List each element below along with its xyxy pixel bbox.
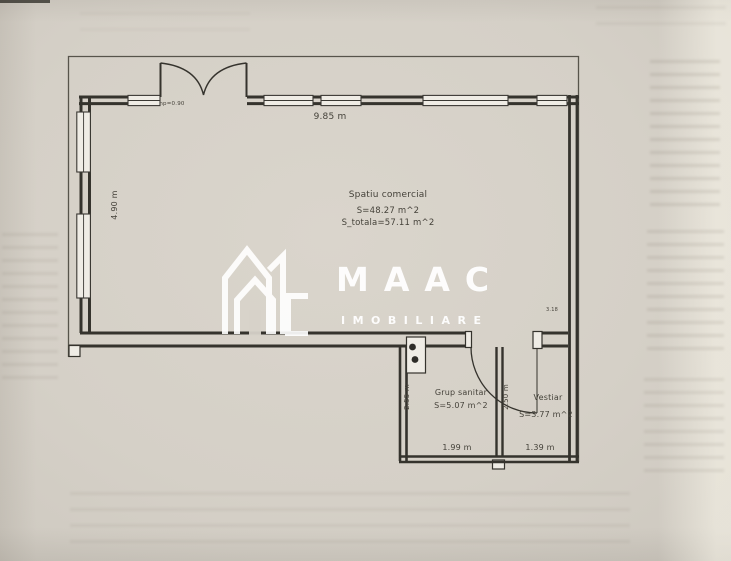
dim-left-depth: 4.90 m <box>110 175 122 235</box>
dim-top-width: 9.85 m <box>302 112 358 122</box>
scanned-floor-plan-page: 9.85 m hp=0.90 4.90 m Spatiu comercial S… <box>0 0 731 561</box>
sanitar-room-name: Grup sanitar <box>421 388 501 397</box>
watermark-subtitle: IMOBILIARE <box>341 314 488 327</box>
total-area: S_totala=57.11 m^2 <box>333 218 443 228</box>
watermark-brand: MAAC <box>336 260 504 299</box>
logo-door-gap <box>249 310 261 336</box>
dim-sanitar-depth: 2.55 m <box>403 374 413 420</box>
maac-house-logo-icon <box>220 240 312 336</box>
right-wall <box>570 95 578 462</box>
entrance-double-door <box>161 63 247 97</box>
sanitar-room-area: S=5.07 m^2 <box>421 401 501 410</box>
main-room-name: Spatiu comercial <box>333 190 443 200</box>
bottom-wall <box>69 332 568 357</box>
vestiar-room-area: S=3.77 m^2 <box>510 410 582 419</box>
main-room-area: S=48.27 m^2 <box>333 206 443 216</box>
dim-sanitar-width: 1.99 m <box>432 443 482 452</box>
window-parapet-note: hp=0.90 <box>150 101 194 107</box>
dim-vestiar-width: 1.39 m <box>510 443 570 452</box>
sanitary-fixture-icon <box>407 337 426 373</box>
vestiar-room-name: Vestiar <box>513 393 583 402</box>
wall-note: 3.18 <box>540 307 564 313</box>
